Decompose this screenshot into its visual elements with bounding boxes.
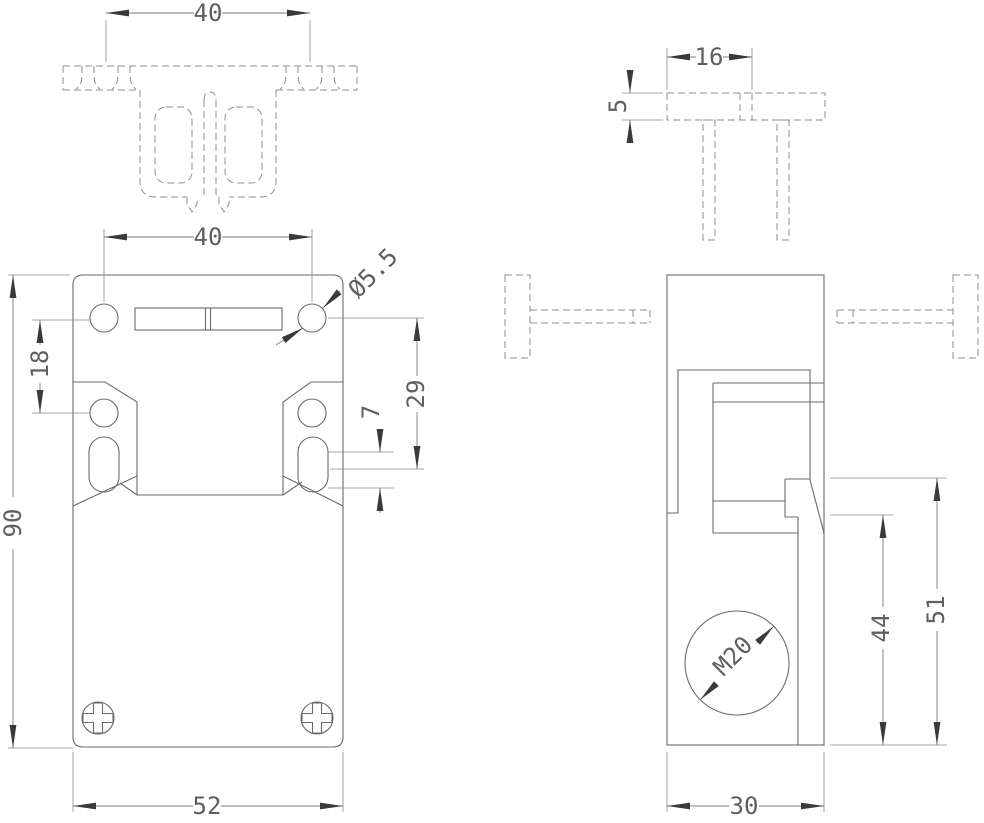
dim-label: 40 (194, 0, 223, 27)
dim-conduit-thread: M20 (700, 626, 774, 700)
dim-slot-height: 7 (328, 405, 394, 513)
dim-label: 30 (730, 792, 759, 820)
technical-drawing-canvas: 40 40 Ø5.5 18 90 (0, 0, 984, 823)
mount-hole-left (90, 304, 118, 332)
front-view-body (73, 275, 343, 747)
dim-label: 40 (194, 223, 223, 251)
head-hole-left (90, 399, 118, 427)
key-bar-left (530, 310, 650, 323)
actuator-tongue (204, 92, 216, 198)
label-slot (135, 308, 282, 330)
front-actuator-key (63, 66, 357, 212)
dim-body-height: 90 (0, 275, 73, 748)
body-outline (73, 275, 343, 747)
mount-hole-right (298, 304, 326, 332)
dim-label: Ø5.5 (343, 243, 404, 304)
actuator-plate (63, 66, 357, 90)
dim-label: M20 (708, 631, 758, 681)
side-head-internal (667, 370, 824, 745)
keyhole-slot-left (89, 437, 119, 492)
dim-slot-face-to-base: 51 (830, 478, 950, 745)
actuator-plate-side (667, 93, 825, 120)
side-actuator-key-left (505, 275, 650, 358)
actuator-leg-left (703, 120, 715, 240)
key-bar-right (837, 310, 953, 323)
dim-label: 16 (695, 43, 724, 71)
dim-body-width: 52 (73, 752, 343, 820)
actuator-loop-right (225, 107, 262, 183)
dim-label: 5 (604, 99, 632, 113)
dim-body-depth: 30 (667, 752, 824, 820)
dim-mount-hole-spacing: 40 (104, 223, 312, 302)
key-head-right (953, 275, 978, 358)
dim-label: 52 (193, 792, 222, 820)
dim-label: 18 (26, 350, 54, 379)
side-body-outline (667, 275, 824, 745)
actuator-plate-slot (740, 93, 752, 120)
dim-label: 44 (867, 614, 895, 643)
actuator-countersink-right (280, 66, 340, 89)
dim-hole-pair-spacing: 18 (26, 320, 90, 413)
dim-label: 51 (922, 596, 950, 625)
actuator-countersink-left (76, 66, 136, 89)
label-slot-divider (206, 308, 211, 330)
screw-left-cross-icon (83, 703, 113, 733)
actuator-loop-left (155, 107, 192, 183)
dim-label: 29 (402, 380, 430, 409)
side-actuator-key-top (667, 93, 825, 240)
dim-actuator-plate-thickness: 5 (604, 75, 663, 138)
screw-right-cross-icon (302, 703, 332, 733)
side-actuator-key-right (837, 275, 978, 358)
dim-label: 7 (357, 405, 385, 419)
dim-lever-step-to-base: 44 (830, 515, 895, 745)
screw-right (301, 702, 333, 734)
dim-actuator-width: 40 (106, 0, 310, 62)
dim-mount-hole-dia: Ø5.5 (276, 243, 403, 345)
screw-left (82, 702, 114, 734)
dim-label: 90 (0, 509, 27, 538)
two-view-dimension-drawing: 40 40 Ø5.5 18 90 (0, 0, 984, 823)
side-view-body (667, 275, 824, 745)
head-hole-right (298, 399, 326, 427)
actuator-leg-right (777, 120, 789, 240)
dimensions: 40 40 Ø5.5 18 90 (0, 0, 950, 820)
dim-actuator-hole-offset: 16 (667, 43, 752, 90)
key-head-left (505, 275, 530, 358)
keyhole-slot-right (298, 437, 328, 492)
